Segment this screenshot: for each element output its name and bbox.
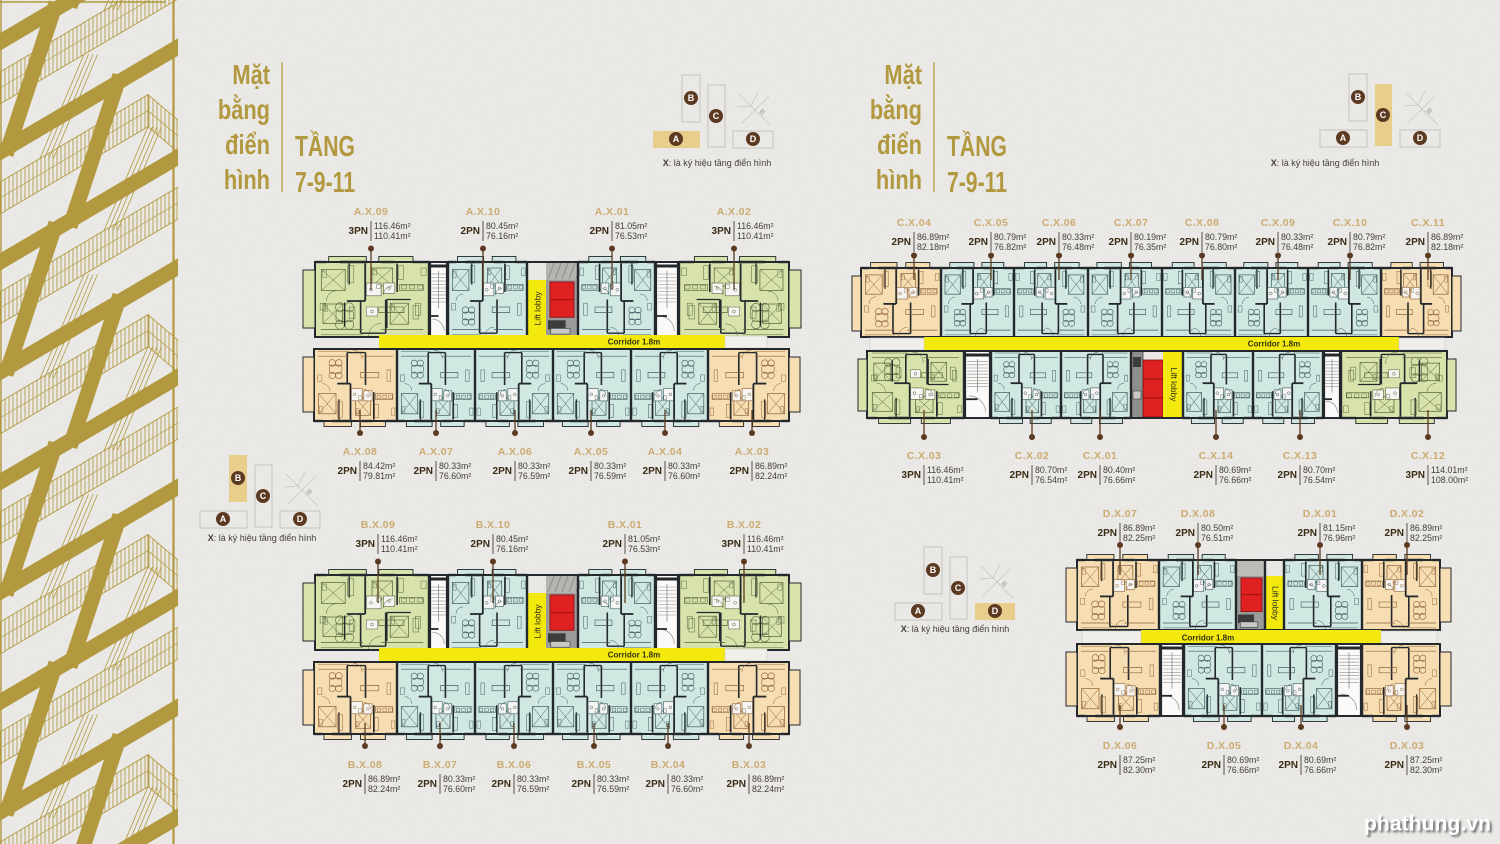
svg-text:86.89m²: 86.89m² bbox=[917, 232, 949, 242]
svg-text:2PN: 2PN bbox=[1010, 470, 1029, 481]
svg-text:80.33m²: 80.33m² bbox=[668, 461, 700, 471]
svg-text:X: là ký hiệu tầng điển hình: X: là ký hiệu tầng điển hình bbox=[663, 158, 772, 168]
svg-text:82.25m²: 82.25m² bbox=[1410, 533, 1442, 543]
svg-text:76.66m²: 76.66m² bbox=[1103, 475, 1135, 485]
svg-text:2PN: 2PN bbox=[730, 466, 749, 477]
svg-text:D.X.08: D.X.08 bbox=[1181, 508, 1216, 520]
svg-text:87.25m²: 87.25m² bbox=[1410, 755, 1442, 765]
svg-text:X: là ký hiệu tầng điển hình: X: là ký hiệu tầng điển hình bbox=[1271, 158, 1380, 168]
svg-text:A: A bbox=[673, 134, 680, 144]
svg-text:B.X.09: B.X.09 bbox=[361, 519, 396, 531]
svg-text:76.82m²: 76.82m² bbox=[1353, 242, 1385, 252]
svg-text:D.X.04: D.X.04 bbox=[1284, 740, 1319, 752]
svg-text:76.59m²: 76.59m² bbox=[594, 471, 626, 481]
svg-text:B.X.05: B.X.05 bbox=[577, 759, 612, 771]
svg-text:2PN: 2PN bbox=[1078, 470, 1097, 481]
svg-text:108.00m²: 108.00m² bbox=[1431, 475, 1468, 485]
svg-text:116.46m²: 116.46m² bbox=[927, 465, 964, 475]
svg-text:3PN: 3PN bbox=[349, 226, 368, 237]
svg-text:X: là ký hiệu tầng điển hình: X: là ký hiệu tầng điển hình bbox=[901, 624, 1010, 634]
svg-text:A.X.04: A.X.04 bbox=[648, 446, 683, 458]
svg-text:2PN: 2PN bbox=[1176, 528, 1195, 539]
svg-text:2PN: 2PN bbox=[414, 466, 433, 477]
svg-text:76.66m²: 76.66m² bbox=[1227, 765, 1259, 775]
svg-text:C.X.10: C.X.10 bbox=[1333, 217, 1368, 229]
svg-text:114.01m²: 114.01m² bbox=[1431, 465, 1468, 475]
svg-text:3PN: 3PN bbox=[1406, 470, 1425, 481]
svg-text:B.X.02: B.X.02 bbox=[727, 519, 762, 531]
svg-text:76.60m²: 76.60m² bbox=[671, 784, 703, 794]
svg-text:D.X.07: D.X.07 bbox=[1103, 508, 1138, 520]
svg-text:80.33m²: 80.33m² bbox=[439, 461, 471, 471]
svg-text:80.69m²: 80.69m² bbox=[1219, 465, 1251, 475]
svg-text:110.41m²: 110.41m² bbox=[747, 544, 784, 554]
svg-text:B: B bbox=[930, 565, 937, 575]
svg-text:2PN: 2PN bbox=[727, 779, 746, 790]
svg-text:110.41m²: 110.41m² bbox=[927, 475, 964, 485]
svg-text:C: C bbox=[955, 583, 962, 593]
svg-text:76.51m²: 76.51m² bbox=[1201, 533, 1233, 543]
svg-text:76.96m²: 76.96m² bbox=[1323, 533, 1355, 543]
svg-text:76.16m²: 76.16m² bbox=[486, 231, 518, 241]
svg-text:A.X.10: A.X.10 bbox=[466, 206, 501, 218]
svg-text:2PN: 2PN bbox=[1278, 470, 1297, 481]
svg-text:80.70m²: 80.70m² bbox=[1303, 465, 1335, 475]
svg-text:2PN: 2PN bbox=[1385, 760, 1404, 771]
svg-text:C.X.11: C.X.11 bbox=[1411, 217, 1445, 229]
svg-text:82.25m²: 82.25m² bbox=[1123, 533, 1155, 543]
svg-text:76.66m²: 76.66m² bbox=[1304, 765, 1336, 775]
svg-text:3PN: 3PN bbox=[712, 226, 731, 237]
svg-text:C: C bbox=[260, 491, 267, 501]
svg-text:A: A bbox=[1340, 133, 1347, 143]
svg-text:80.70m²: 80.70m² bbox=[1035, 465, 1067, 475]
svg-text:76.16m²: 76.16m² bbox=[496, 544, 528, 554]
svg-text:B.X.06: B.X.06 bbox=[497, 759, 532, 771]
svg-text:76.59m²: 76.59m² bbox=[518, 471, 550, 481]
svg-text:Corridor 1.8m: Corridor 1.8m bbox=[608, 651, 660, 660]
svg-text:116.46m²: 116.46m² bbox=[737, 221, 774, 231]
svg-text:2PN: 2PN bbox=[418, 779, 437, 790]
svg-text:110.41m²: 110.41m² bbox=[737, 231, 774, 241]
svg-text:76.60m²: 76.60m² bbox=[443, 784, 475, 794]
svg-text:B.X.08: B.X.08 bbox=[348, 759, 383, 771]
svg-text:86.89m²: 86.89m² bbox=[1410, 523, 1442, 533]
svg-text:2PN: 2PN bbox=[1180, 237, 1199, 248]
svg-text:110.41m²: 110.41m² bbox=[374, 231, 411, 241]
svg-text:Corridor 1.8m: Corridor 1.8m bbox=[1248, 340, 1300, 349]
svg-text:A: A bbox=[915, 606, 922, 616]
svg-text:D.X.02: D.X.02 bbox=[1390, 508, 1425, 520]
svg-text:2PN: 2PN bbox=[603, 539, 622, 550]
svg-text:82.24m²: 82.24m² bbox=[752, 784, 784, 794]
svg-text:bằng: bằng bbox=[218, 92, 270, 125]
svg-text:B.X.07: B.X.07 bbox=[423, 759, 458, 771]
svg-text:B: B bbox=[1355, 92, 1362, 102]
svg-text:3PN: 3PN bbox=[722, 539, 741, 550]
svg-text:116.46m²: 116.46m² bbox=[374, 221, 411, 231]
svg-text:phathung.vn: phathung.vn bbox=[1364, 813, 1491, 836]
svg-text:82.30m²: 82.30m² bbox=[1123, 765, 1155, 775]
svg-text:2PN: 2PN bbox=[646, 779, 665, 790]
svg-text:A: A bbox=[220, 514, 227, 524]
svg-text:2PN: 2PN bbox=[892, 237, 911, 248]
svg-text:C: C bbox=[713, 111, 720, 121]
svg-text:80.79m²: 80.79m² bbox=[1353, 232, 1385, 242]
svg-text:2PN: 2PN bbox=[1406, 237, 1425, 248]
svg-text:76.54m²: 76.54m² bbox=[1303, 475, 1335, 485]
svg-text:82.30m²: 82.30m² bbox=[1410, 765, 1442, 775]
svg-text:B.X.04: B.X.04 bbox=[651, 759, 686, 771]
svg-text:2PN: 2PN bbox=[1037, 237, 1056, 248]
svg-text:82.24m²: 82.24m² bbox=[755, 471, 787, 481]
svg-text:2PN: 2PN bbox=[343, 779, 362, 790]
svg-text:7-9-11: 7-9-11 bbox=[947, 167, 1007, 199]
svg-text:A.X.03: A.X.03 bbox=[735, 446, 770, 458]
svg-text:76.80m²: 76.80m² bbox=[1205, 242, 1237, 252]
svg-text:80.33m²: 80.33m² bbox=[517, 774, 549, 784]
svg-text:2PN: 2PN bbox=[461, 226, 480, 237]
svg-text:80.45m²: 80.45m² bbox=[496, 534, 528, 544]
svg-text:2PN: 2PN bbox=[1328, 237, 1347, 248]
svg-text:80.33m²: 80.33m² bbox=[1281, 232, 1313, 242]
svg-text:C.X.13: C.X.13 bbox=[1283, 450, 1318, 462]
svg-text:Corridor 1.8m: Corridor 1.8m bbox=[608, 338, 660, 347]
svg-text:76.66m²: 76.66m² bbox=[1219, 475, 1251, 485]
svg-text:D: D bbox=[750, 134, 757, 144]
svg-text:3PN: 3PN bbox=[356, 539, 375, 550]
svg-text:TẦNG: TẦNG bbox=[295, 130, 355, 163]
svg-text:2PN: 2PN bbox=[1109, 237, 1128, 248]
svg-text:2PN: 2PN bbox=[1194, 470, 1213, 481]
svg-text:116.46m²: 116.46m² bbox=[381, 534, 418, 544]
svg-text:2PN: 2PN bbox=[1256, 237, 1275, 248]
svg-text:hình: hình bbox=[876, 164, 922, 195]
svg-text:76.82m²: 76.82m² bbox=[994, 242, 1026, 252]
svg-text:84.42m²: 84.42m² bbox=[363, 461, 395, 471]
svg-text:D.X.01: D.X.01 bbox=[1303, 508, 1338, 520]
svg-text:D: D bbox=[297, 514, 304, 524]
svg-text:A.X.05: A.X.05 bbox=[574, 446, 609, 458]
svg-text:3PN: 3PN bbox=[902, 470, 921, 481]
svg-text:86.89m²: 86.89m² bbox=[1431, 232, 1463, 242]
svg-text:80.19m²: 80.19m² bbox=[1134, 232, 1166, 242]
svg-text:80.33m²: 80.33m² bbox=[671, 774, 703, 784]
svg-text:80.33m²: 80.33m² bbox=[443, 774, 475, 784]
svg-text:2PN: 2PN bbox=[493, 466, 512, 477]
svg-text:Lift lobby: Lift lobby bbox=[1271, 586, 1281, 621]
svg-text:B.X.10: B.X.10 bbox=[476, 519, 511, 531]
svg-text:80.69m²: 80.69m² bbox=[1304, 755, 1336, 765]
svg-text:Mặt: Mặt bbox=[232, 59, 270, 90]
svg-text:86.89m²: 86.89m² bbox=[752, 774, 784, 784]
svg-text:80.69m²: 80.69m² bbox=[1227, 755, 1259, 765]
svg-text:76.53m²: 76.53m² bbox=[615, 231, 647, 241]
svg-text:87.25m²: 87.25m² bbox=[1123, 755, 1155, 765]
svg-text:76.48m²: 76.48m² bbox=[1281, 242, 1313, 252]
svg-text:82.18m²: 82.18m² bbox=[917, 242, 949, 252]
svg-text:2PN: 2PN bbox=[572, 779, 591, 790]
svg-text:C.X.12: C.X.12 bbox=[1411, 450, 1446, 462]
svg-text:A.X.08: A.X.08 bbox=[343, 446, 378, 458]
svg-text:2PN: 2PN bbox=[1279, 760, 1298, 771]
svg-text:B.X.03: B.X.03 bbox=[732, 759, 767, 771]
svg-text:76.59m²: 76.59m² bbox=[597, 784, 629, 794]
svg-text:116.46m²: 116.46m² bbox=[747, 534, 784, 544]
svg-text:C.X.07: C.X.07 bbox=[1114, 217, 1149, 229]
svg-text:2PN: 2PN bbox=[492, 779, 511, 790]
svg-text:82.24m²: 82.24m² bbox=[368, 784, 400, 794]
svg-text:Lift lobby: Lift lobby bbox=[533, 604, 543, 639]
svg-text:A.X.01: A.X.01 bbox=[595, 206, 630, 218]
svg-text:B: B bbox=[235, 473, 242, 483]
svg-text:2PN: 2PN bbox=[569, 466, 588, 477]
svg-text:76.60m²: 76.60m² bbox=[668, 471, 700, 481]
svg-text:76.59m²: 76.59m² bbox=[517, 784, 549, 794]
svg-text:110.41m²: 110.41m² bbox=[381, 544, 418, 554]
svg-text:TẦNG: TẦNG bbox=[947, 130, 1007, 163]
svg-text:2PN: 2PN bbox=[590, 226, 609, 237]
svg-text:2PN: 2PN bbox=[969, 237, 988, 248]
svg-text:C: C bbox=[1380, 110, 1387, 120]
svg-text:Mặt: Mặt bbox=[884, 59, 922, 90]
svg-text:81.05m²: 81.05m² bbox=[615, 221, 647, 231]
svg-text:B: B bbox=[688, 93, 695, 103]
svg-text:2PN: 2PN bbox=[643, 466, 662, 477]
svg-text:80.33m²: 80.33m² bbox=[1062, 232, 1094, 242]
svg-text:82.18m²: 82.18m² bbox=[1431, 242, 1463, 252]
svg-text:A.X.02: A.X.02 bbox=[717, 206, 752, 218]
svg-text:D.X.06: D.X.06 bbox=[1103, 740, 1138, 752]
svg-text:76.53m²: 76.53m² bbox=[628, 544, 660, 554]
svg-text:Lift lobby: Lift lobby bbox=[533, 291, 543, 326]
svg-text:80.33m²: 80.33m² bbox=[594, 461, 626, 471]
svg-text:2PN: 2PN bbox=[1098, 528, 1117, 539]
svg-text:bằng: bằng bbox=[870, 92, 922, 125]
svg-text:C.X.06: C.X.06 bbox=[1042, 217, 1077, 229]
svg-text:A.X.09: A.X.09 bbox=[354, 206, 389, 218]
svg-text:C.X.08: C.X.08 bbox=[1185, 217, 1220, 229]
svg-text:C.X.14: C.X.14 bbox=[1199, 450, 1234, 462]
svg-text:79.81m²: 79.81m² bbox=[363, 471, 395, 481]
svg-text:80.33m²: 80.33m² bbox=[518, 461, 550, 471]
svg-text:80.45m²: 80.45m² bbox=[486, 221, 518, 231]
svg-text:2PN: 2PN bbox=[1098, 760, 1117, 771]
svg-text:X: là ký hiệu tầng điển hình: X: là ký hiệu tầng điển hình bbox=[208, 533, 317, 543]
svg-text:điển: điển bbox=[225, 129, 270, 160]
svg-text:A.X.06: A.X.06 bbox=[498, 446, 533, 458]
svg-text:hình: hình bbox=[224, 164, 270, 195]
svg-text:76.54m²: 76.54m² bbox=[1035, 475, 1067, 485]
svg-text:2PN: 2PN bbox=[1385, 528, 1404, 539]
svg-text:D.X.05: D.X.05 bbox=[1207, 740, 1242, 752]
svg-text:76.48m²: 76.48m² bbox=[1062, 242, 1094, 252]
svg-text:2PN: 2PN bbox=[1298, 528, 1317, 539]
svg-text:C.X.02: C.X.02 bbox=[1015, 450, 1050, 462]
svg-text:86.89m²: 86.89m² bbox=[368, 774, 400, 784]
svg-text:80.79m²: 80.79m² bbox=[1205, 232, 1237, 242]
svg-text:76.60m²: 76.60m² bbox=[439, 471, 471, 481]
svg-text:81.05m²: 81.05m² bbox=[628, 534, 660, 544]
svg-text:điển: điển bbox=[877, 129, 922, 160]
svg-text:Lift lobby: Lift lobby bbox=[1169, 367, 1179, 402]
svg-text:7-9-11: 7-9-11 bbox=[295, 167, 355, 199]
svg-text:80.79m²: 80.79m² bbox=[994, 232, 1026, 242]
svg-text:80.33m²: 80.33m² bbox=[597, 774, 629, 784]
svg-text:D: D bbox=[992, 606, 999, 616]
svg-text:80.50m²: 80.50m² bbox=[1201, 523, 1233, 533]
svg-text:2PN: 2PN bbox=[338, 466, 357, 477]
svg-text:D: D bbox=[1417, 133, 1424, 143]
svg-text:76.35m²: 76.35m² bbox=[1134, 242, 1166, 252]
svg-text:C.X.03: C.X.03 bbox=[907, 450, 942, 462]
svg-text:C.X.09: C.X.09 bbox=[1261, 217, 1296, 229]
svg-text:Corridor 1.8m: Corridor 1.8m bbox=[1182, 634, 1234, 643]
svg-text:2PN: 2PN bbox=[1202, 760, 1221, 771]
svg-text:86.89m²: 86.89m² bbox=[755, 461, 787, 471]
svg-text:C.X.01: C.X.01 bbox=[1083, 450, 1118, 462]
svg-text:B.X.01: B.X.01 bbox=[608, 519, 643, 531]
svg-text:C.X.05: C.X.05 bbox=[974, 217, 1009, 229]
svg-text:80.40m²: 80.40m² bbox=[1103, 465, 1135, 475]
svg-text:81.15m²: 81.15m² bbox=[1323, 523, 1355, 533]
svg-text:C.X.04: C.X.04 bbox=[897, 217, 932, 229]
svg-text:D.X.03: D.X.03 bbox=[1390, 740, 1425, 752]
svg-text:2PN: 2PN bbox=[471, 539, 490, 550]
svg-text:86.89m²: 86.89m² bbox=[1123, 523, 1155, 533]
svg-text:A.X.07: A.X.07 bbox=[419, 446, 454, 458]
